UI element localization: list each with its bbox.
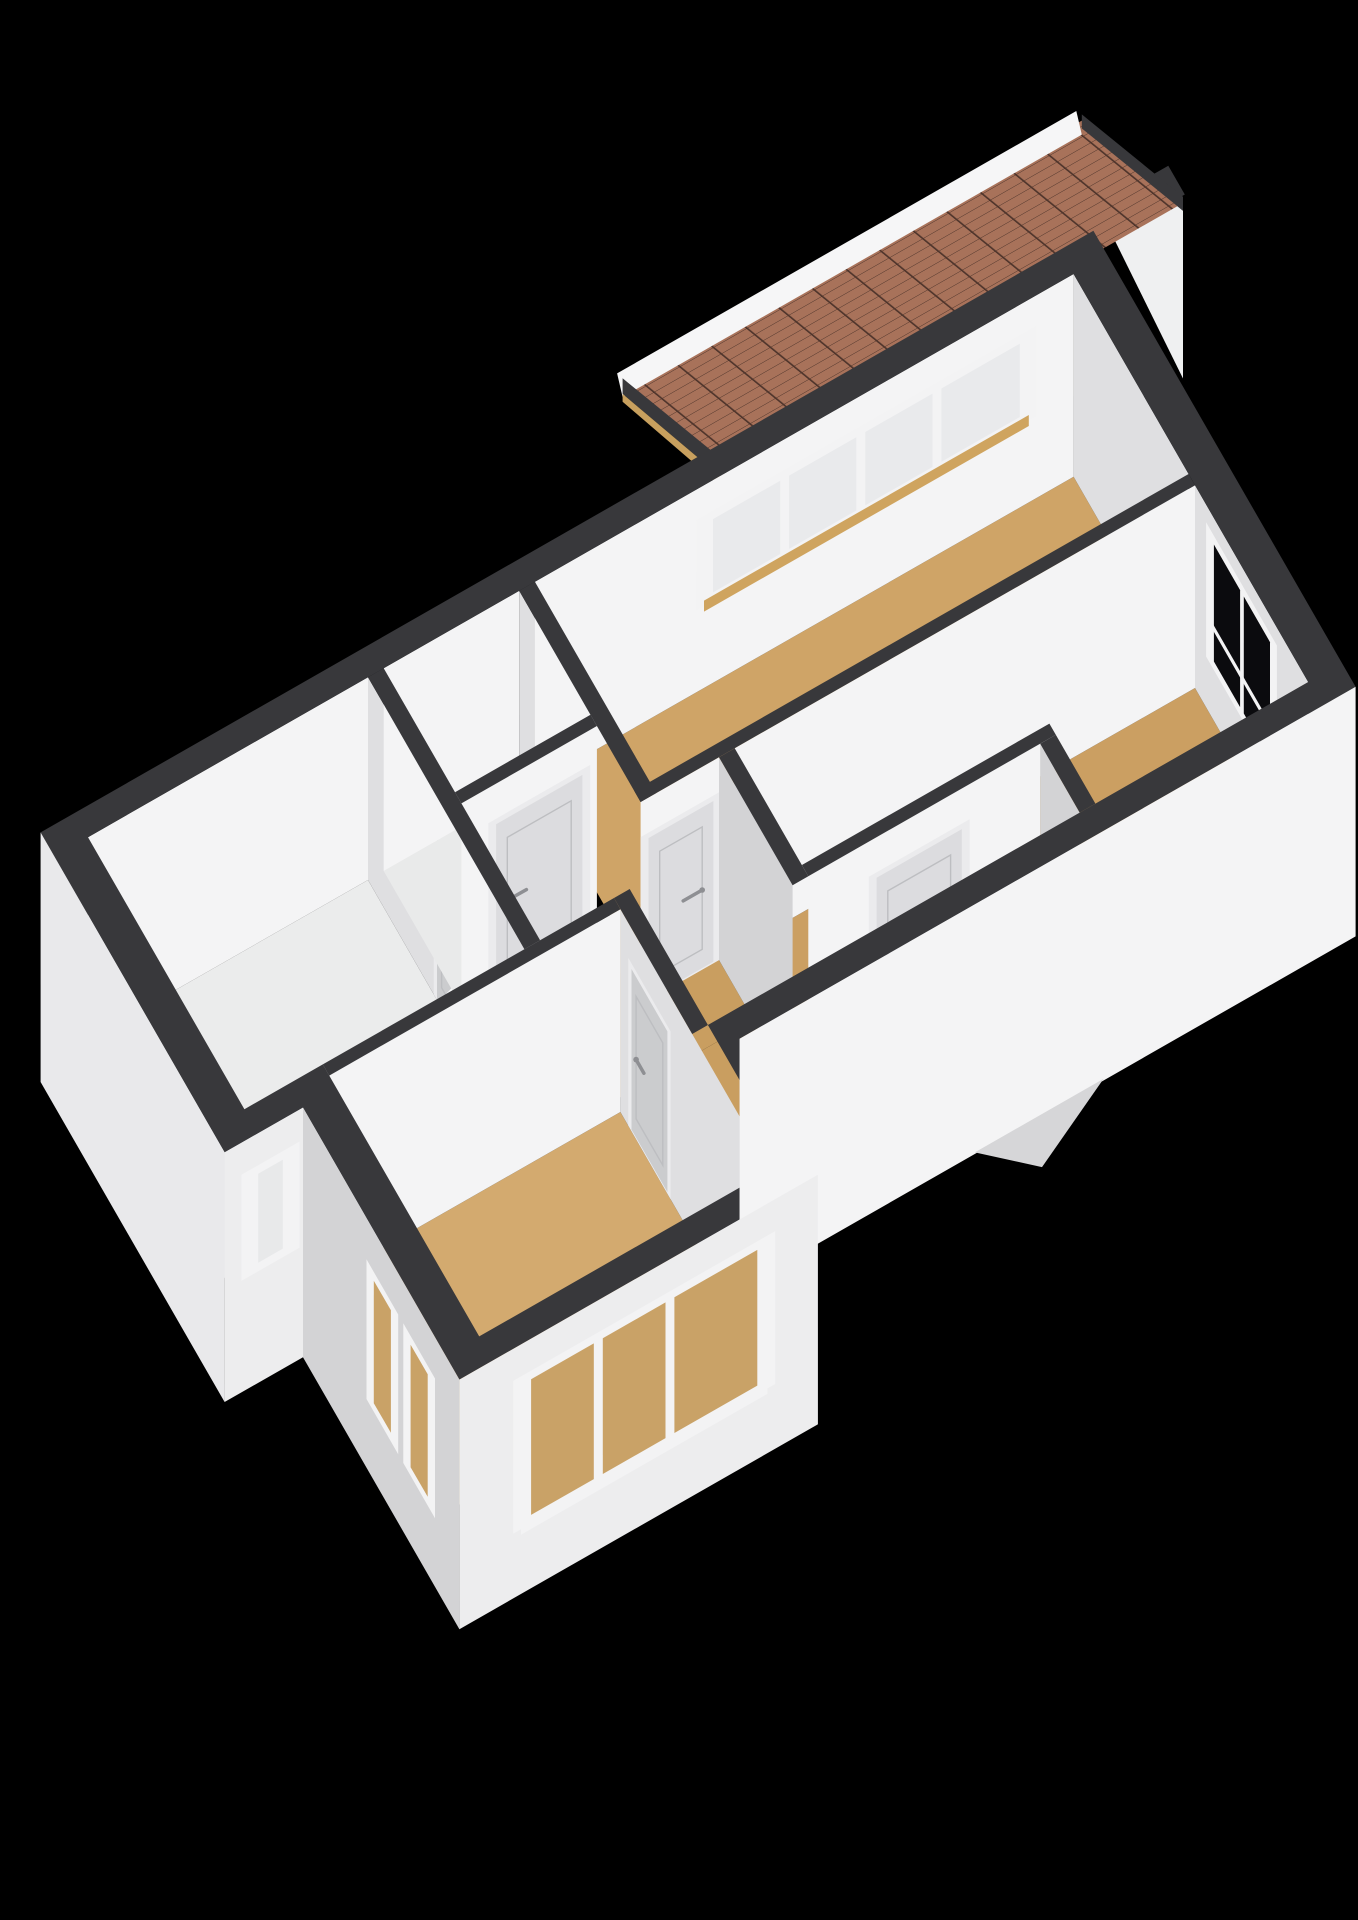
bedroom1-door-handle-rose bbox=[699, 887, 705, 893]
floorplan-svg bbox=[0, 0, 1358, 1920]
floorplan-3d bbox=[0, 0, 1358, 1920]
bathroom-window-pane bbox=[258, 1160, 283, 1263]
bedroom3-door-handle-rose bbox=[633, 1057, 639, 1063]
